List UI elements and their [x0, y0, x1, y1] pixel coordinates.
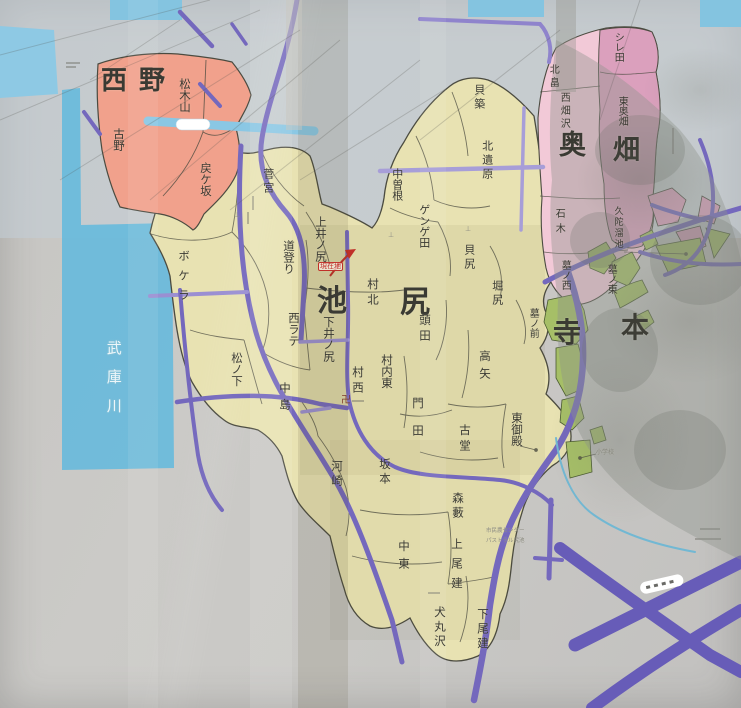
district-label: 西ラテ [287, 312, 299, 347]
district-label: 戻ケ坂 [199, 162, 211, 197]
labels-layer: 西野奥畑池尻寺本武庫川松木山古野戻ケ坂菅宮上井ノ尻道登りボケラ西ラテ下井ノ尻松ノ… [0, 0, 741, 708]
district-label: 北畠 [547, 64, 557, 90]
area-label: 寺 [553, 318, 581, 347]
district-label: ボケラ [177, 250, 189, 309]
area-label: 本 [621, 313, 649, 342]
district-label: 墓ノ西 [559, 260, 569, 290]
district-label: 西畑沢 [558, 92, 568, 131]
marker-label: 現在地 [318, 262, 343, 271]
area-label: 池 [317, 286, 347, 317]
district-label: 中東 [397, 540, 409, 575]
district-label: 古堂 [458, 424, 470, 455]
district-label: ゲンゲ田 [418, 204, 429, 248]
district-label: 菅宮 [262, 168, 273, 196]
district-label: シレ田 [612, 32, 622, 62]
district-label: 坂本 [378, 458, 390, 487]
district-label: 道登り [282, 240, 294, 275]
district-label: 墓ノ東 [605, 264, 615, 294]
district-label: 貝尻 [463, 244, 474, 272]
district-label: 河崎 [330, 460, 342, 489]
district-label: 東奥畑 [616, 96, 626, 126]
district-label: 久陀溜池 [612, 206, 621, 250]
district-label: 貝築 [473, 84, 484, 112]
district-label: 門田 [411, 397, 423, 452]
facility-label: 市民農センター [486, 529, 525, 535]
district-label: 北遺原 [481, 140, 492, 182]
symbol-label: ⊥ [465, 226, 471, 233]
district-label: 下尾建 [476, 608, 488, 652]
district-label: 森藪 [451, 492, 463, 521]
symbol-label: ⊥ [388, 232, 394, 239]
district-label: 中島 [278, 382, 290, 415]
district-label: 中曽根 [391, 168, 402, 201]
map-photo: 西野奥畑池尻寺本武庫川松木山古野戻ケ坂菅宮上井ノ尻道登りボケラ西ラテ下井ノ尻松ノ… [0, 0, 741, 708]
area-label: 奥 [559, 132, 586, 160]
district-label: 堀尻 [491, 280, 502, 308]
district-label: 上尾建 [450, 538, 462, 597]
district-label: 頭田 [418, 314, 430, 345]
area-label: 畑 [613, 137, 640, 165]
district-label: 村北 [366, 278, 378, 309]
river-label: 武庫川 [105, 340, 121, 427]
district-label: 墓ノ前 [527, 308, 537, 338]
district-label: 古野 [112, 128, 124, 151]
district-label: 石木 [553, 208, 563, 238]
district-label: 上井ノ尻 [314, 216, 326, 262]
area-label: 西野 [101, 68, 177, 95]
district-label: 下井ノ尻 [322, 316, 334, 362]
district-label: 東御殿 [510, 412, 522, 447]
district-label: 村西 [351, 366, 363, 397]
district-label: 高矢 [478, 350, 490, 385]
district-label: 犬丸沢 [433, 606, 445, 650]
facility-label: パストラル尻池 [486, 539, 525, 545]
facility-label: 小学校 [596, 450, 614, 456]
symbol-label: ⊥ [234, 212, 240, 219]
district-label: 村内東 [380, 354, 392, 389]
district-label: 松ノ下 [230, 352, 242, 387]
district-label: 松木山 [178, 78, 190, 113]
symbol-label: 卍 [341, 396, 351, 406]
